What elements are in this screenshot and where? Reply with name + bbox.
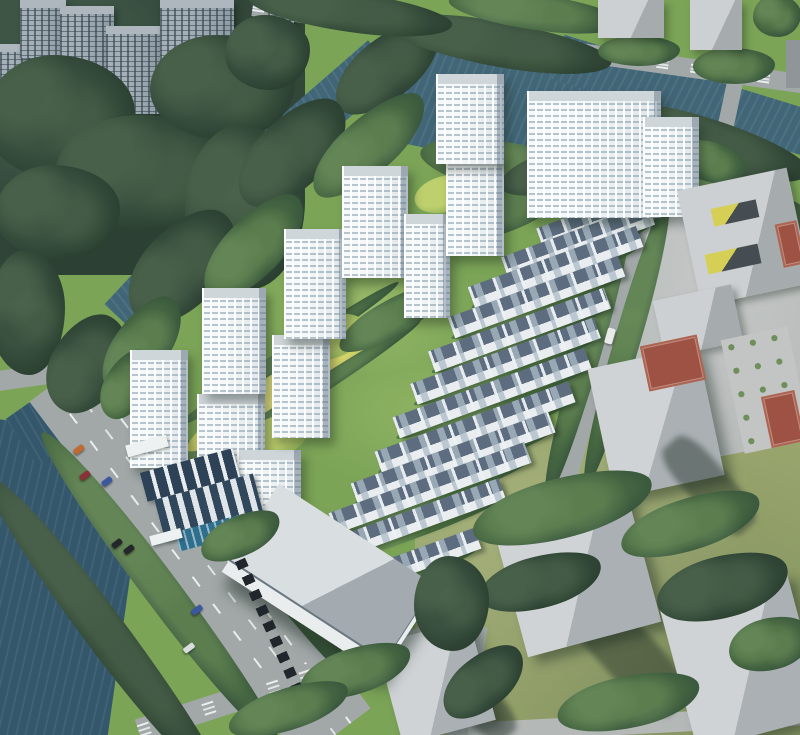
context-block xyxy=(598,0,664,38)
hedge-grove xyxy=(414,556,489,651)
residential-tower xyxy=(446,156,504,256)
context-block xyxy=(786,40,800,88)
context-block xyxy=(690,0,742,50)
residential-tower xyxy=(202,288,266,394)
residential-tower xyxy=(527,91,661,218)
topright-grove xyxy=(693,48,775,84)
residential-tower xyxy=(284,229,346,339)
aerial-render-canvas xyxy=(0,0,800,735)
residential-tower xyxy=(436,74,504,164)
park-grove xyxy=(225,15,310,90)
topright-grove xyxy=(598,36,680,66)
residential-tower xyxy=(404,214,450,318)
residential-tower xyxy=(342,166,408,278)
residential-tower xyxy=(272,335,330,438)
topright-grove xyxy=(753,0,800,37)
